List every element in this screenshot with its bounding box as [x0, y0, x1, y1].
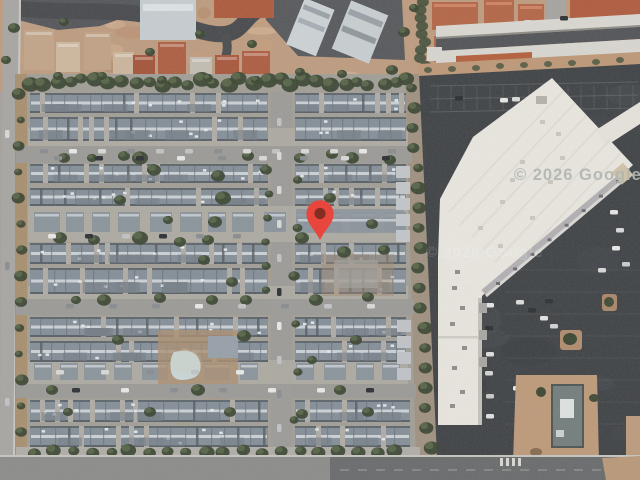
svg-text:© 2026 Google: © 2026 Google — [426, 244, 543, 261]
svg-text:© 2026 Google: © 2026 Google — [514, 166, 640, 184]
